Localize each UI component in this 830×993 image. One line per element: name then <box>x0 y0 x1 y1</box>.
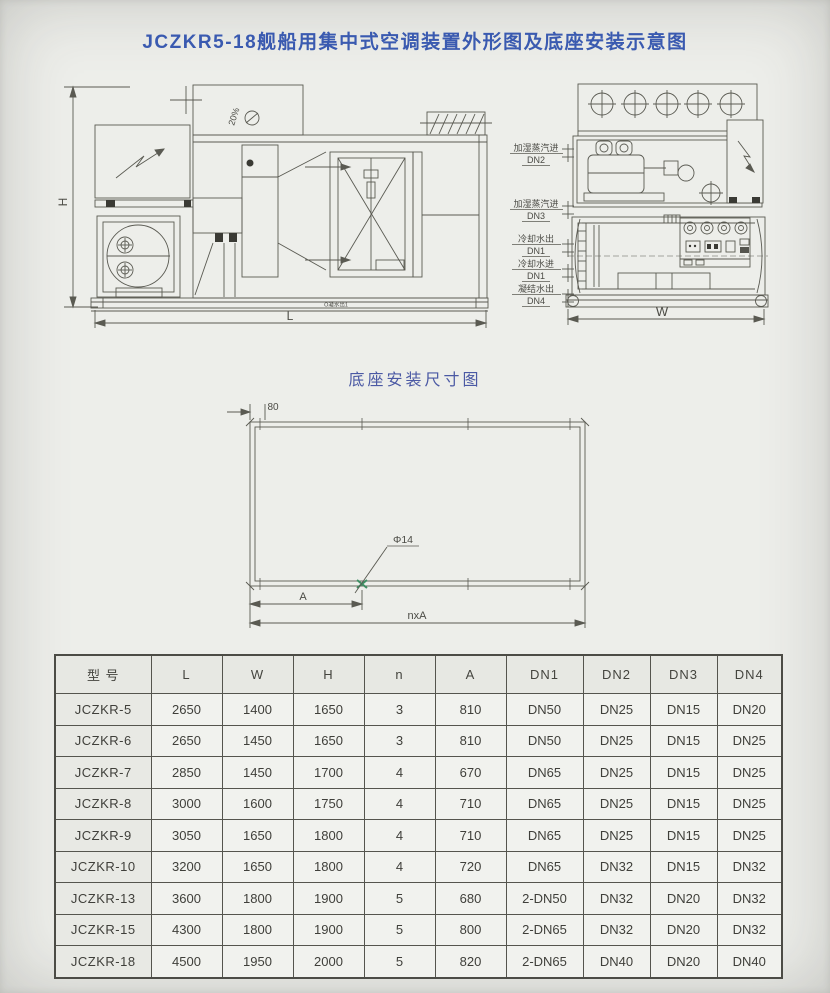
value-cell: 800 <box>435 914 506 946</box>
base-diagram-drawing: 80 Φ14 A nxA <box>225 396 620 636</box>
value-cell: 1600 <box>222 788 293 820</box>
drain-annotation: O凝水出1 <box>324 301 348 309</box>
value-cell: 5 <box>364 946 435 978</box>
value-cell: DN32 <box>583 851 650 883</box>
value-cell: 2-DN50 <box>506 883 583 915</box>
l-dim-label: L <box>287 309 294 323</box>
roof-annotation: 20% <box>226 106 241 126</box>
value-cell: DN32 <box>717 851 782 883</box>
value-cell: 4 <box>364 851 435 883</box>
edge-offset-label: 80 <box>267 402 279 413</box>
value-cell: 1650 <box>222 851 293 883</box>
table-row: JCZKR-62650145016503810DN50DN25DN15DN25 <box>55 725 782 757</box>
value-cell: 4 <box>364 788 435 820</box>
value-cell: 1800 <box>293 851 364 883</box>
value-cell: DN25 <box>717 788 782 820</box>
spec-table-header: 型 号 L W H n A DN1 DN2 DN3 DN4 <box>55 655 782 694</box>
value-cell: 1750 <box>293 788 364 820</box>
value-cell: DN50 <box>506 694 583 726</box>
spec-table: 型 号 L W H n A DN1 DN2 DN3 DN4 JCZKR-5265… <box>54 654 783 979</box>
page-title: JCZKR5-18舰船用集中式空调装置外形图及底座安装示意图 <box>0 27 830 54</box>
total-dim-label: nxA <box>408 610 428 622</box>
value-cell: 820 <box>435 946 506 978</box>
value-cell: 1800 <box>293 820 364 852</box>
model-cell: JCZKR-8 <box>55 788 151 820</box>
value-cell: 4 <box>364 820 435 852</box>
value-cell: DN65 <box>506 851 583 883</box>
value-cell: 2650 <box>151 694 222 726</box>
pitch-dim-label: A <box>299 591 307 603</box>
value-cell: DN15 <box>650 757 717 789</box>
value-cell: DN20 <box>650 946 717 978</box>
model-cell: JCZKR-15 <box>55 914 151 946</box>
model-cell: JCZKR-7 <box>55 757 151 789</box>
value-cell: 1450 <box>222 757 293 789</box>
value-cell: 710 <box>435 820 506 852</box>
spec-table-container: 型 号 L W H n A DN1 DN2 DN3 DN4 JCZKR-5265… <box>54 654 783 979</box>
value-cell: DN20 <box>650 914 717 946</box>
table-row: JCZKR-72850145017004670DN65DN25DN15DN25 <box>55 757 782 789</box>
header-dn1: DN1 <box>506 655 583 694</box>
value-cell: 2650 <box>151 725 222 757</box>
value-cell: 1400 <box>222 694 293 726</box>
port-label-4-name: 冷却水进 <box>518 258 554 269</box>
port-label-3-name: 冷却水出 <box>518 233 554 244</box>
value-cell: 4 <box>364 757 435 789</box>
value-cell: 3050 <box>151 820 222 852</box>
value-cell: 2-DN65 <box>506 946 583 978</box>
value-cell: DN32 <box>583 914 650 946</box>
header-dn4: DN4 <box>717 655 782 694</box>
w-dim-label: W <box>656 304 669 319</box>
value-cell: DN40 <box>717 946 782 978</box>
value-cell: DN25 <box>583 725 650 757</box>
value-cell: 1650 <box>293 694 364 726</box>
header-row: 型 号 L W H n A DN1 DN2 DN3 DN4 <box>55 655 782 694</box>
port-label-2-size: DN3 <box>527 211 545 221</box>
table-row: JCZKR-83000160017504710DN65DN25DN15DN25 <box>55 788 782 820</box>
value-cell: 3 <box>364 725 435 757</box>
model-cell: JCZKR-13 <box>55 883 151 915</box>
value-cell: DN15 <box>650 820 717 852</box>
value-cell: DN15 <box>650 725 717 757</box>
port-label-3-size: DN1 <box>527 246 545 256</box>
model-cell: JCZKR-6 <box>55 725 151 757</box>
header-model: 型 号 <box>55 655 151 694</box>
header-a: A <box>435 655 506 694</box>
port-label-1-name: 加湿蒸汽进 <box>513 142 558 153</box>
spec-table-body: JCZKR-52650140016503810DN50DN25DN15DN20J… <box>55 694 782 978</box>
value-cell: 1650 <box>222 820 293 852</box>
header-w: W <box>222 655 293 694</box>
value-cell: DN20 <box>717 694 782 726</box>
value-cell: 3 <box>364 694 435 726</box>
table-row: JCZKR-93050165018004710DN65DN25DN15DN25 <box>55 820 782 852</box>
value-cell: DN15 <box>650 788 717 820</box>
value-cell: DN50 <box>506 725 583 757</box>
value-cell: 2850 <box>151 757 222 789</box>
header-dn2: DN2 <box>583 655 650 694</box>
value-cell: DN25 <box>583 694 650 726</box>
value-cell: DN15 <box>650 851 717 883</box>
base-diagram-title: 底座安装尺寸图 <box>0 366 830 390</box>
value-cell: 720 <box>435 851 506 883</box>
port-label-4-size: DN1 <box>527 271 545 281</box>
value-cell: DN25 <box>717 757 782 789</box>
side-view-drawing: W 加湿蒸汽进 DN2 加湿蒸汽进 DN3 冷却水出 DN1 冷却水进 DN1 … <box>506 73 828 331</box>
port-label-5-name: 凝结水出 <box>518 283 554 294</box>
value-cell: DN25 <box>717 725 782 757</box>
value-cell: 2-DN65 <box>506 914 583 946</box>
value-cell: 680 <box>435 883 506 915</box>
page-root: JCZKR5-18舰船用集中式空调装置外形图及底座安装示意图 <box>0 0 830 993</box>
value-cell: 810 <box>435 694 506 726</box>
header-n: n <box>364 655 435 694</box>
table-row: JCZKR-1543001800190058002-DN65DN32DN20DN… <box>55 914 782 946</box>
value-cell: 1800 <box>222 914 293 946</box>
value-cell: 1900 <box>293 883 364 915</box>
model-cell: JCZKR-5 <box>55 694 151 726</box>
model-cell: JCZKR-18 <box>55 946 151 978</box>
front-view-drawing: H L 20% O凝水出1 <box>58 70 506 338</box>
value-cell: DN25 <box>583 788 650 820</box>
hole-diameter-label: Φ14 <box>393 534 413 546</box>
value-cell: 3200 <box>151 851 222 883</box>
value-cell: 810 <box>435 725 506 757</box>
value-cell: DN32 <box>717 883 782 915</box>
value-cell: DN65 <box>506 757 583 789</box>
fan-openings <box>588 90 745 118</box>
value-cell: 1800 <box>222 883 293 915</box>
value-cell: DN65 <box>506 788 583 820</box>
value-cell: DN65 <box>506 820 583 852</box>
value-cell: 1650 <box>293 725 364 757</box>
port-label-1-size: DN2 <box>527 155 545 165</box>
value-cell: 2000 <box>293 946 364 978</box>
model-cell: JCZKR-9 <box>55 820 151 852</box>
header-h: H <box>293 655 364 694</box>
value-cell: DN32 <box>583 883 650 915</box>
header-dn3: DN3 <box>650 655 717 694</box>
value-cell: DN40 <box>583 946 650 978</box>
value-cell: DN25 <box>717 820 782 852</box>
value-cell: DN32 <box>717 914 782 946</box>
value-cell: DN25 <box>583 757 650 789</box>
port-label-2-name: 加湿蒸汽进 <box>513 198 558 209</box>
model-cell: JCZKR-10 <box>55 851 151 883</box>
value-cell: 4500 <box>151 946 222 978</box>
value-cell: 5 <box>364 914 435 946</box>
value-cell: 3600 <box>151 883 222 915</box>
h-dim-label: H <box>58 198 70 207</box>
value-cell: 1950 <box>222 946 293 978</box>
header-l: L <box>151 655 222 694</box>
value-cell: 710 <box>435 788 506 820</box>
value-cell: DN15 <box>650 694 717 726</box>
value-cell: 1700 <box>293 757 364 789</box>
table-row: JCZKR-103200165018004720DN65DN32DN15DN32 <box>55 851 782 883</box>
value-cell: DN20 <box>650 883 717 915</box>
table-row: JCZKR-52650140016503810DN50DN25DN15DN20 <box>55 694 782 726</box>
value-cell: 5 <box>364 883 435 915</box>
value-cell: 1900 <box>293 914 364 946</box>
value-cell: 4300 <box>151 914 222 946</box>
value-cell: 670 <box>435 757 506 789</box>
value-cell: DN25 <box>583 820 650 852</box>
value-cell: 1450 <box>222 725 293 757</box>
value-cell: 3000 <box>151 788 222 820</box>
table-row: JCZKR-1336001800190056802-DN50DN32DN20DN… <box>55 883 782 915</box>
table-row: JCZKR-1845001950200058202-DN65DN40DN20DN… <box>55 946 782 978</box>
port-label-5-size: DN4 <box>527 296 545 306</box>
